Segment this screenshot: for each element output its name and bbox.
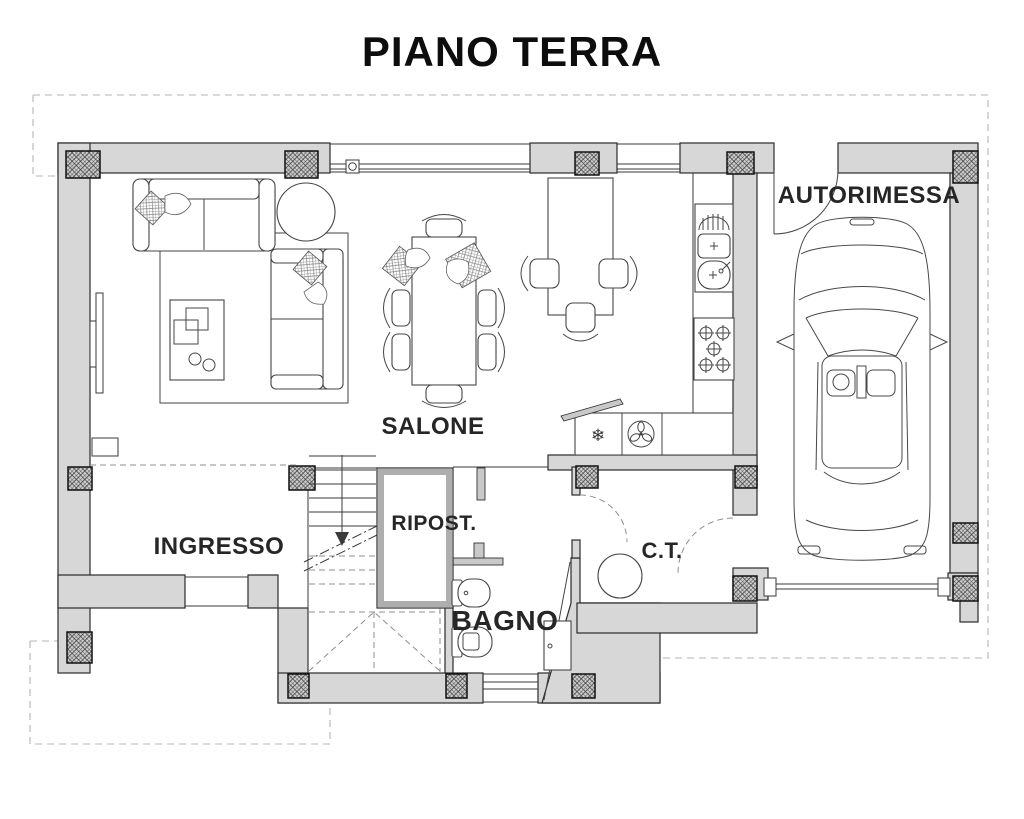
car (777, 217, 947, 560)
stair-direction-arrow (335, 532, 349, 546)
window-bagno-bottom (483, 674, 538, 702)
boiler (598, 554, 642, 598)
floor-plan-svg: ❄ (0, 0, 1024, 819)
side-table (277, 183, 335, 241)
room-label-bagno: BAGNO (452, 605, 559, 636)
gas-hob-icon (694, 318, 734, 380)
salone-hall-door (453, 467, 548, 500)
storage-room (377, 468, 453, 608)
mirror-left (777, 334, 794, 350)
room-label-ct: C.T. (641, 538, 682, 563)
floor-plan-page: PIANO TERRA (0, 0, 1024, 819)
tv-unit (90, 293, 103, 393)
room-label-ingresso: INGRESSO (154, 533, 285, 560)
ct-door-from-hall (580, 495, 627, 542)
room-label-autorimessa: AUTORIMESSA (778, 182, 960, 209)
room-label-ripostiglio: RIPOST. (391, 512, 476, 535)
ct-door-to-garage (678, 518, 733, 573)
freezer-icon: ❄ (591, 426, 605, 445)
bagno-door (452, 543, 503, 565)
kitchen: ❄ (521, 173, 734, 455)
garage-sectional-door (764, 578, 950, 596)
living-area (90, 179, 348, 456)
double-sink-icon (695, 204, 733, 292)
coffee-table (170, 300, 224, 380)
bidet (452, 579, 490, 607)
kitchen-bottom-counter: ❄ (561, 399, 733, 455)
hall-cabinet (92, 438, 118, 456)
window-kitchen-top (617, 144, 680, 172)
window-salone-top (330, 144, 530, 172)
dining-table-set (382, 215, 504, 408)
room-label-salone: SALONE (381, 413, 484, 440)
wall-fixture-symbol (346, 160, 359, 173)
front-door-opening (185, 577, 248, 606)
mirror-right (930, 334, 947, 350)
kitchen-island (521, 178, 637, 341)
